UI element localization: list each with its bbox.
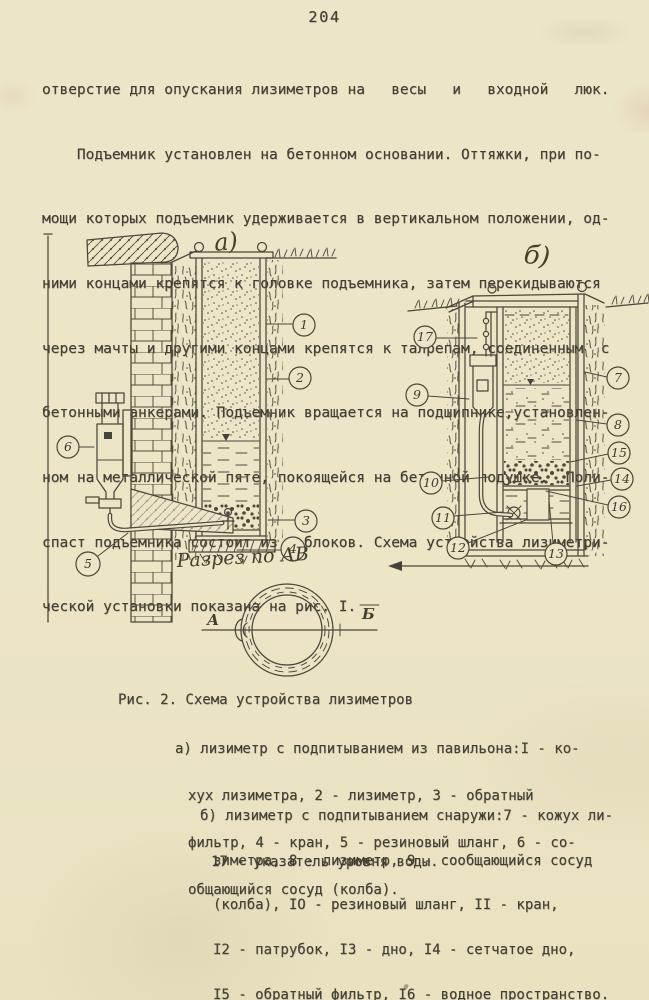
caption-line: I2 - патрубок, I3 - дно, I4 - сетчатое д… [200,943,613,958]
level-indicator [483,312,497,356]
callout-17: 17 [414,326,477,348]
soil-band-right [267,260,283,542]
callout-15-number: 15 [611,445,627,460]
caption-line: (колба), IО - резиновый шланг, II - кран… [200,898,613,913]
concrete-slab [87,233,178,266]
callout-6-number: 6 [64,439,72,454]
flask-b [470,355,496,415]
callout-11-number: 11 [435,510,451,525]
soil-band-b-right [584,305,605,556]
callout-7-number: 7 [614,370,622,385]
callout-9-number: 9 [413,387,421,402]
callout-5: 5 [76,533,128,576]
patrubok [527,489,549,520]
callout-3-number: 3 [302,513,310,528]
figure-caption-title: Рис. 2. Схема устройства лизиметров [118,692,413,708]
callout-11: 11 [432,507,503,529]
figure-caption-item-17: 17 - указатель уровня воды. [211,854,439,870]
callout-10-number: 10 [423,475,439,490]
section-letter-a: А [206,611,219,629]
paragraph-line: Подъемник установлен на бетонном основан… [42,145,609,167]
brick-wall [131,263,172,622]
callout-5-number: 5 [84,556,92,571]
scanned-page: 204 отверстие для опускания лизиметров н… [0,0,649,1000]
callout-8-number: 8 [614,417,622,432]
figure-caption-item-b: б) лизиметр с подпитыванием снаружи:7 - … [200,779,613,1000]
page-number: 204 [0,8,649,26]
section-letter-b: Б [361,605,375,623]
callout-14-number: 14 [614,471,630,486]
callout-6: 6 [57,436,94,458]
caption-line: а) лизиметр с подпитыванием из павильона… [175,742,580,758]
flask-a [86,393,132,515]
callout-12-number: 12 [450,540,466,555]
cross-section-view: Разрез по АВ А Б [175,543,379,676]
caption-line: I5 - обратный фильтр, I6 - водное простр… [200,988,613,1000]
callout-13-number: 13 [548,546,564,561]
callout-1-number: 1 [300,317,308,332]
pavilion-wall-line [44,234,52,622]
diagram-b: б) [406,240,649,569]
callout-2-number: 2 [295,370,304,385]
caption-line: б) лизиметр с подпитыванием снаружи:7 - … [200,809,613,824]
callout-17-number: 17 [417,329,433,344]
paragraph-line: отверстие для опускания лизиметров на ве… [42,80,609,102]
callout-16-number: 16 [611,499,627,514]
diagram-b-label: б) [522,240,551,273]
figure-2-diagram: а) [0,226,649,684]
